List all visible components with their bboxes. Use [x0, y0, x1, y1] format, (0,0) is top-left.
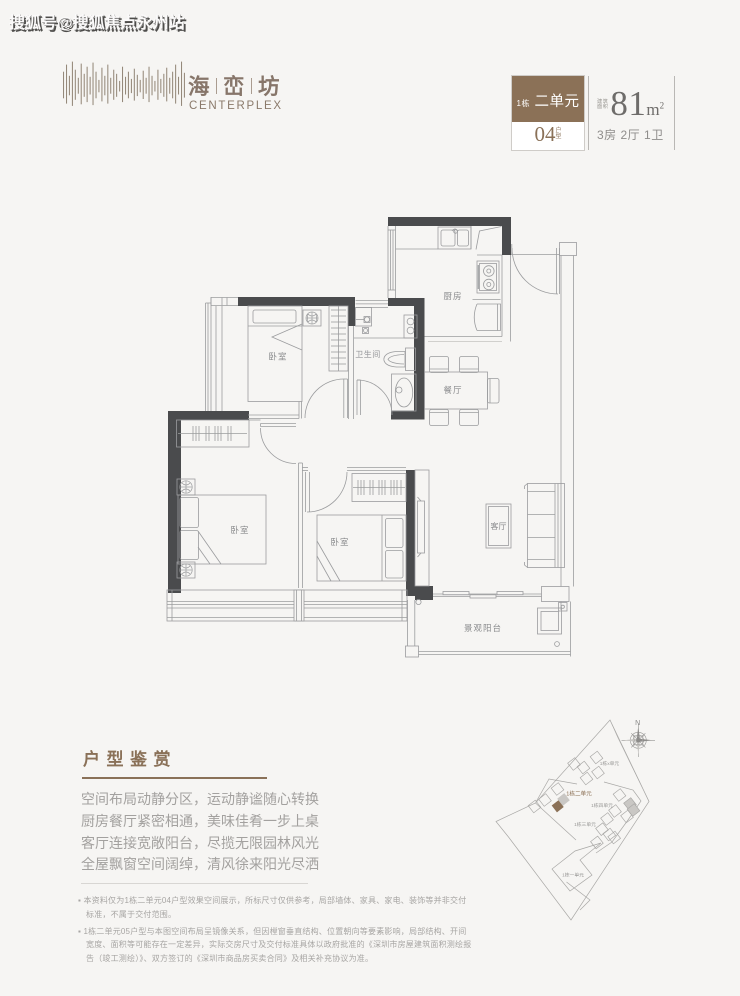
svg-text:厨房: 厨房 — [443, 291, 462, 301]
svg-text:卧室: 卧室 — [230, 525, 249, 535]
svg-text:卧室: 卧室 — [330, 537, 349, 547]
svg-text:景观阳台: 景观阳台 — [464, 623, 502, 633]
svg-text:1栋二单元: 1栋二单元 — [566, 790, 592, 798]
svg-text:1栋四单元: 1栋四单元 — [591, 802, 613, 809]
svg-text:1栋三单元: 1栋三单元 — [574, 821, 596, 828]
svg-text:N: N — [635, 720, 640, 727]
svg-text:餐厅: 餐厅 — [443, 385, 462, 395]
svg-text:1栋x单元: 1栋x单元 — [600, 760, 620, 767]
svg-text:客厅: 客厅 — [491, 521, 507, 531]
svg-text:卧室: 卧室 — [268, 352, 287, 362]
svg-text:1栋一单元: 1栋一单元 — [562, 872, 584, 879]
svg-text:卫生间: 卫生间 — [355, 349, 381, 359]
